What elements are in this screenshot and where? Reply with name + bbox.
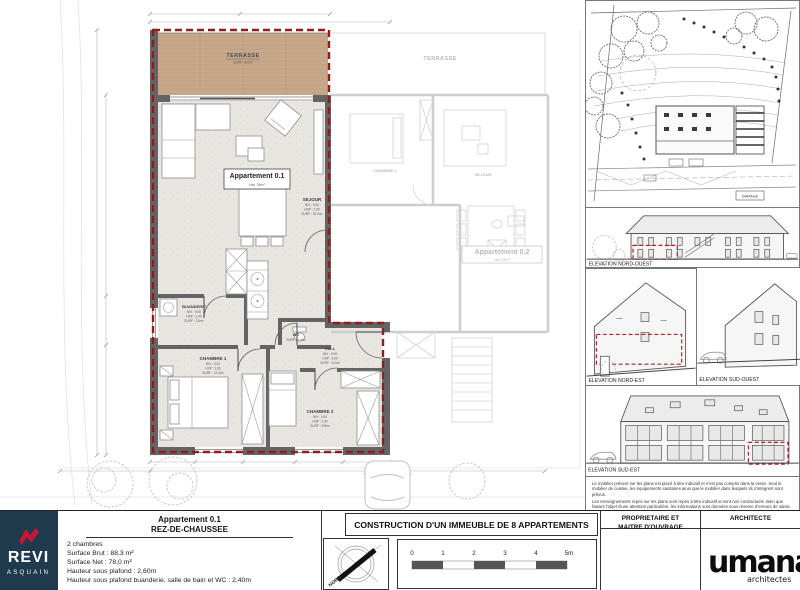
project-section: CONSTRUCTION D'UN IMMEUBLE DE 8 APPARTEM… — [322, 511, 600, 590]
title-block: REVI ASQUAIN Appartement 0.1 REZ-DE-CHAU… — [0, 510, 800, 590]
svg-text:SURF : 32.2m²: SURF : 32.2m² — [301, 212, 322, 216]
logo-text-1: REVI — [8, 550, 49, 566]
elevation-nord-est: ELEVATION NORD-EST — [586, 269, 696, 385]
svg-text:HSP : 2.60: HSP : 2.60 — [312, 420, 328, 424]
svg-text:WC: WC — [293, 332, 300, 337]
disclaimer: Le mobilier présent sur les plans est pl… — [585, 476, 800, 511]
info-line: 2 chambres — [58, 541, 321, 550]
svg-text:HALL: HALL — [325, 346, 336, 351]
site-plan-box: GARAGE — [585, 0, 800, 208]
floor-plan: TERRASSE SURF : 8.0m² Appartement 0.1 Ne… — [0, 0, 585, 510]
compass: NORD — [323, 538, 389, 590]
svg-text:CHAMBRE 1: CHAMBRE 1 — [200, 356, 227, 361]
elevation-nw-box: ELEVATION NORD-OUEST — [585, 207, 800, 268]
tv-unit — [314, 110, 323, 174]
tree-icon — [593, 236, 617, 260]
trevi-logo: REVI ASQUAIN — [0, 511, 57, 590]
project-title: CONSTRUCTION D'UN IMMEUBLE DE 8 APPARTEM… — [345, 513, 598, 536]
svg-text:SURF : 8.0m²: SURF : 8.0m² — [233, 61, 252, 65]
landscape — [87, 457, 485, 509]
svg-text:HSP : 2.40: HSP : 2.40 — [186, 315, 202, 319]
svg-text:SURF : 5.0m²: SURF : 5.0m² — [320, 361, 339, 365]
info-line: Hauteur sous plafond : 2,60m — [58, 568, 321, 577]
svg-text:SEJOUR: SEJOUR — [303, 197, 322, 202]
elevation-label: ELEVATION NORD-OUEST — [589, 262, 653, 267]
right-column: GARAGE — [585, 0, 800, 511]
apartment-info: Appartement 0.1 REZ-DE-CHAUSSEE 2 chambr… — [57, 511, 322, 590]
drawing-sheet: TERRASSE SURF : 8.0m² Appartement 0.1 Ne… — [0, 0, 800, 590]
svg-text:0: 0 — [410, 550, 414, 557]
wardrobe-chambre1 — [242, 374, 263, 444]
info-line: Hauteur sous plafond buanderie, salle de… — [58, 577, 321, 586]
svg-text:SURF : 2.6m²: SURF : 2.6m² — [184, 319, 203, 323]
neighbor-terrace-label: TERRASSE — [423, 56, 456, 62]
elevation-sud-ouest: ELEVATION SUD-OUEST — [697, 268, 800, 384]
svg-text:SURF : 12.4m²: SURF : 12.4m² — [202, 371, 223, 375]
svg-text:Appartement 0.2: Appartement 0.2 — [475, 249, 530, 256]
tree-icon — [149, 457, 197, 505]
svg-text:BUANDERIE: BUANDERIE — [182, 304, 206, 309]
svg-text:CHAMBRE 2: CHAMBRE 2 — [307, 409, 334, 414]
elevation-sud-est: ELEVATION SUD-EST — [586, 386, 799, 476]
svg-text:NIV : 0.00: NIV : 0.00 — [305, 203, 319, 207]
terrace-label: TERRASSE — [226, 53, 259, 59]
building-footprint — [656, 106, 764, 166]
svg-text:NIV : 0.00: NIV : 0.00 — [313, 415, 327, 419]
architect-header: ARCHITECTE — [701, 511, 800, 529]
svg-text:Net 78m²: Net 78m² — [494, 258, 510, 262]
umana-logo-sub: architectes — [747, 575, 791, 584]
elevation-ne-box: ELEVATION NORD-EST — [585, 268, 697, 386]
road — [588, 165, 796, 191]
svg-text:GARAGE: GARAGE — [742, 195, 759, 199]
site-plan: GARAGE — [586, 1, 799, 207]
architect-box: ARCHITECTE umana architectes — [700, 511, 800, 590]
svg-text:NIV : 0.00: NIV : 0.00 — [187, 310, 201, 314]
svg-text:NIV : 0.00: NIV : 0.00 — [206, 362, 220, 366]
scale-bar: 0 1 2 3 4 5m — [397, 539, 597, 589]
svg-text:5m: 5m — [565, 550, 574, 557]
svg-text:2: 2 — [472, 550, 476, 557]
svg-text:NIV : 0.00: NIV : 0.00 — [323, 352, 337, 356]
hall-closet — [341, 371, 380, 388]
svg-text:HSP : 2.60: HSP : 2.60 — [304, 208, 320, 212]
owner-box: PROPRIETAIRE ET MAITRE D'OUVRAGE — [600, 511, 700, 590]
svg-text:SURF : 9.8m²: SURF : 9.8m² — [310, 424, 329, 428]
info-line: Surface Net : 78,0 m² — [58, 559, 321, 568]
apartment-info-header: Appartement 0.1 REZ-DE-CHAUSSEE — [86, 515, 293, 538]
bed-single — [269, 371, 296, 426]
scale-bar-graphic: 0 1 2 3 4 5m — [398, 540, 596, 588]
car-top-view — [363, 461, 412, 509]
neighbor-apartment-label: Appartement 0.2 Net 78m² — [462, 246, 542, 263]
svg-text:Net 78m²: Net 78m² — [249, 183, 265, 187]
door — [600, 356, 609, 376]
svg-text:SURF : 1.3m²: SURF : 1.3m² — [286, 338, 305, 342]
info-line: Surface Brut : 88,3 m² — [58, 550, 321, 559]
wardrobe-chambre2 — [357, 391, 379, 445]
svg-text:3: 3 — [503, 550, 507, 557]
svg-text:Appartement 0.1: Appartement 0.1 — [230, 173, 285, 180]
trevi-logo-icon — [16, 526, 42, 548]
apartment-label: Appartement 0.1 Net 78m² — [224, 169, 290, 189]
owner-header: PROPRIETAIRE ET MAITRE D'OUVRAGE — [601, 511, 700, 529]
car-icon — [700, 352, 726, 363]
svg-text:HSP : 2.60: HSP : 2.60 — [322, 357, 338, 361]
elevation-label: ELEVATION SUD-OUEST — [699, 377, 760, 383]
svg-text:4: 4 — [534, 550, 538, 557]
disclaimer-paragraph: Le mobilier présent sur les plans est pl… — [592, 481, 793, 498]
elevation-label: ELEVATION NORD-EST — [588, 378, 645, 384]
neighbor-chambre1-label: CHAMBRE 1 — [373, 168, 398, 173]
logo-text-2: ASQUAIN — [7, 569, 50, 576]
compass-rose-icon: NORD — [324, 539, 388, 589]
elevation-label: ELEVATION SUD-EST — [588, 468, 641, 474]
garage-label: GARAGE — [736, 191, 764, 200]
washer — [160, 299, 177, 316]
car-icon — [590, 452, 616, 463]
neighbor-sejour-label: SEJOUR — [475, 172, 492, 177]
elevation-se-box: ELEVATION SUD-EST — [585, 385, 800, 477]
elevation-nord-ouest: ELEVATION NORD-OUEST — [586, 208, 799, 267]
svg-text:1: 1 — [441, 550, 445, 557]
car-icon — [786, 253, 797, 258]
svg-text:HSP : 2.60: HSP : 2.60 — [205, 367, 221, 371]
elevation-so-box: ELEVATION SUD-OUEST — [696, 267, 800, 386]
